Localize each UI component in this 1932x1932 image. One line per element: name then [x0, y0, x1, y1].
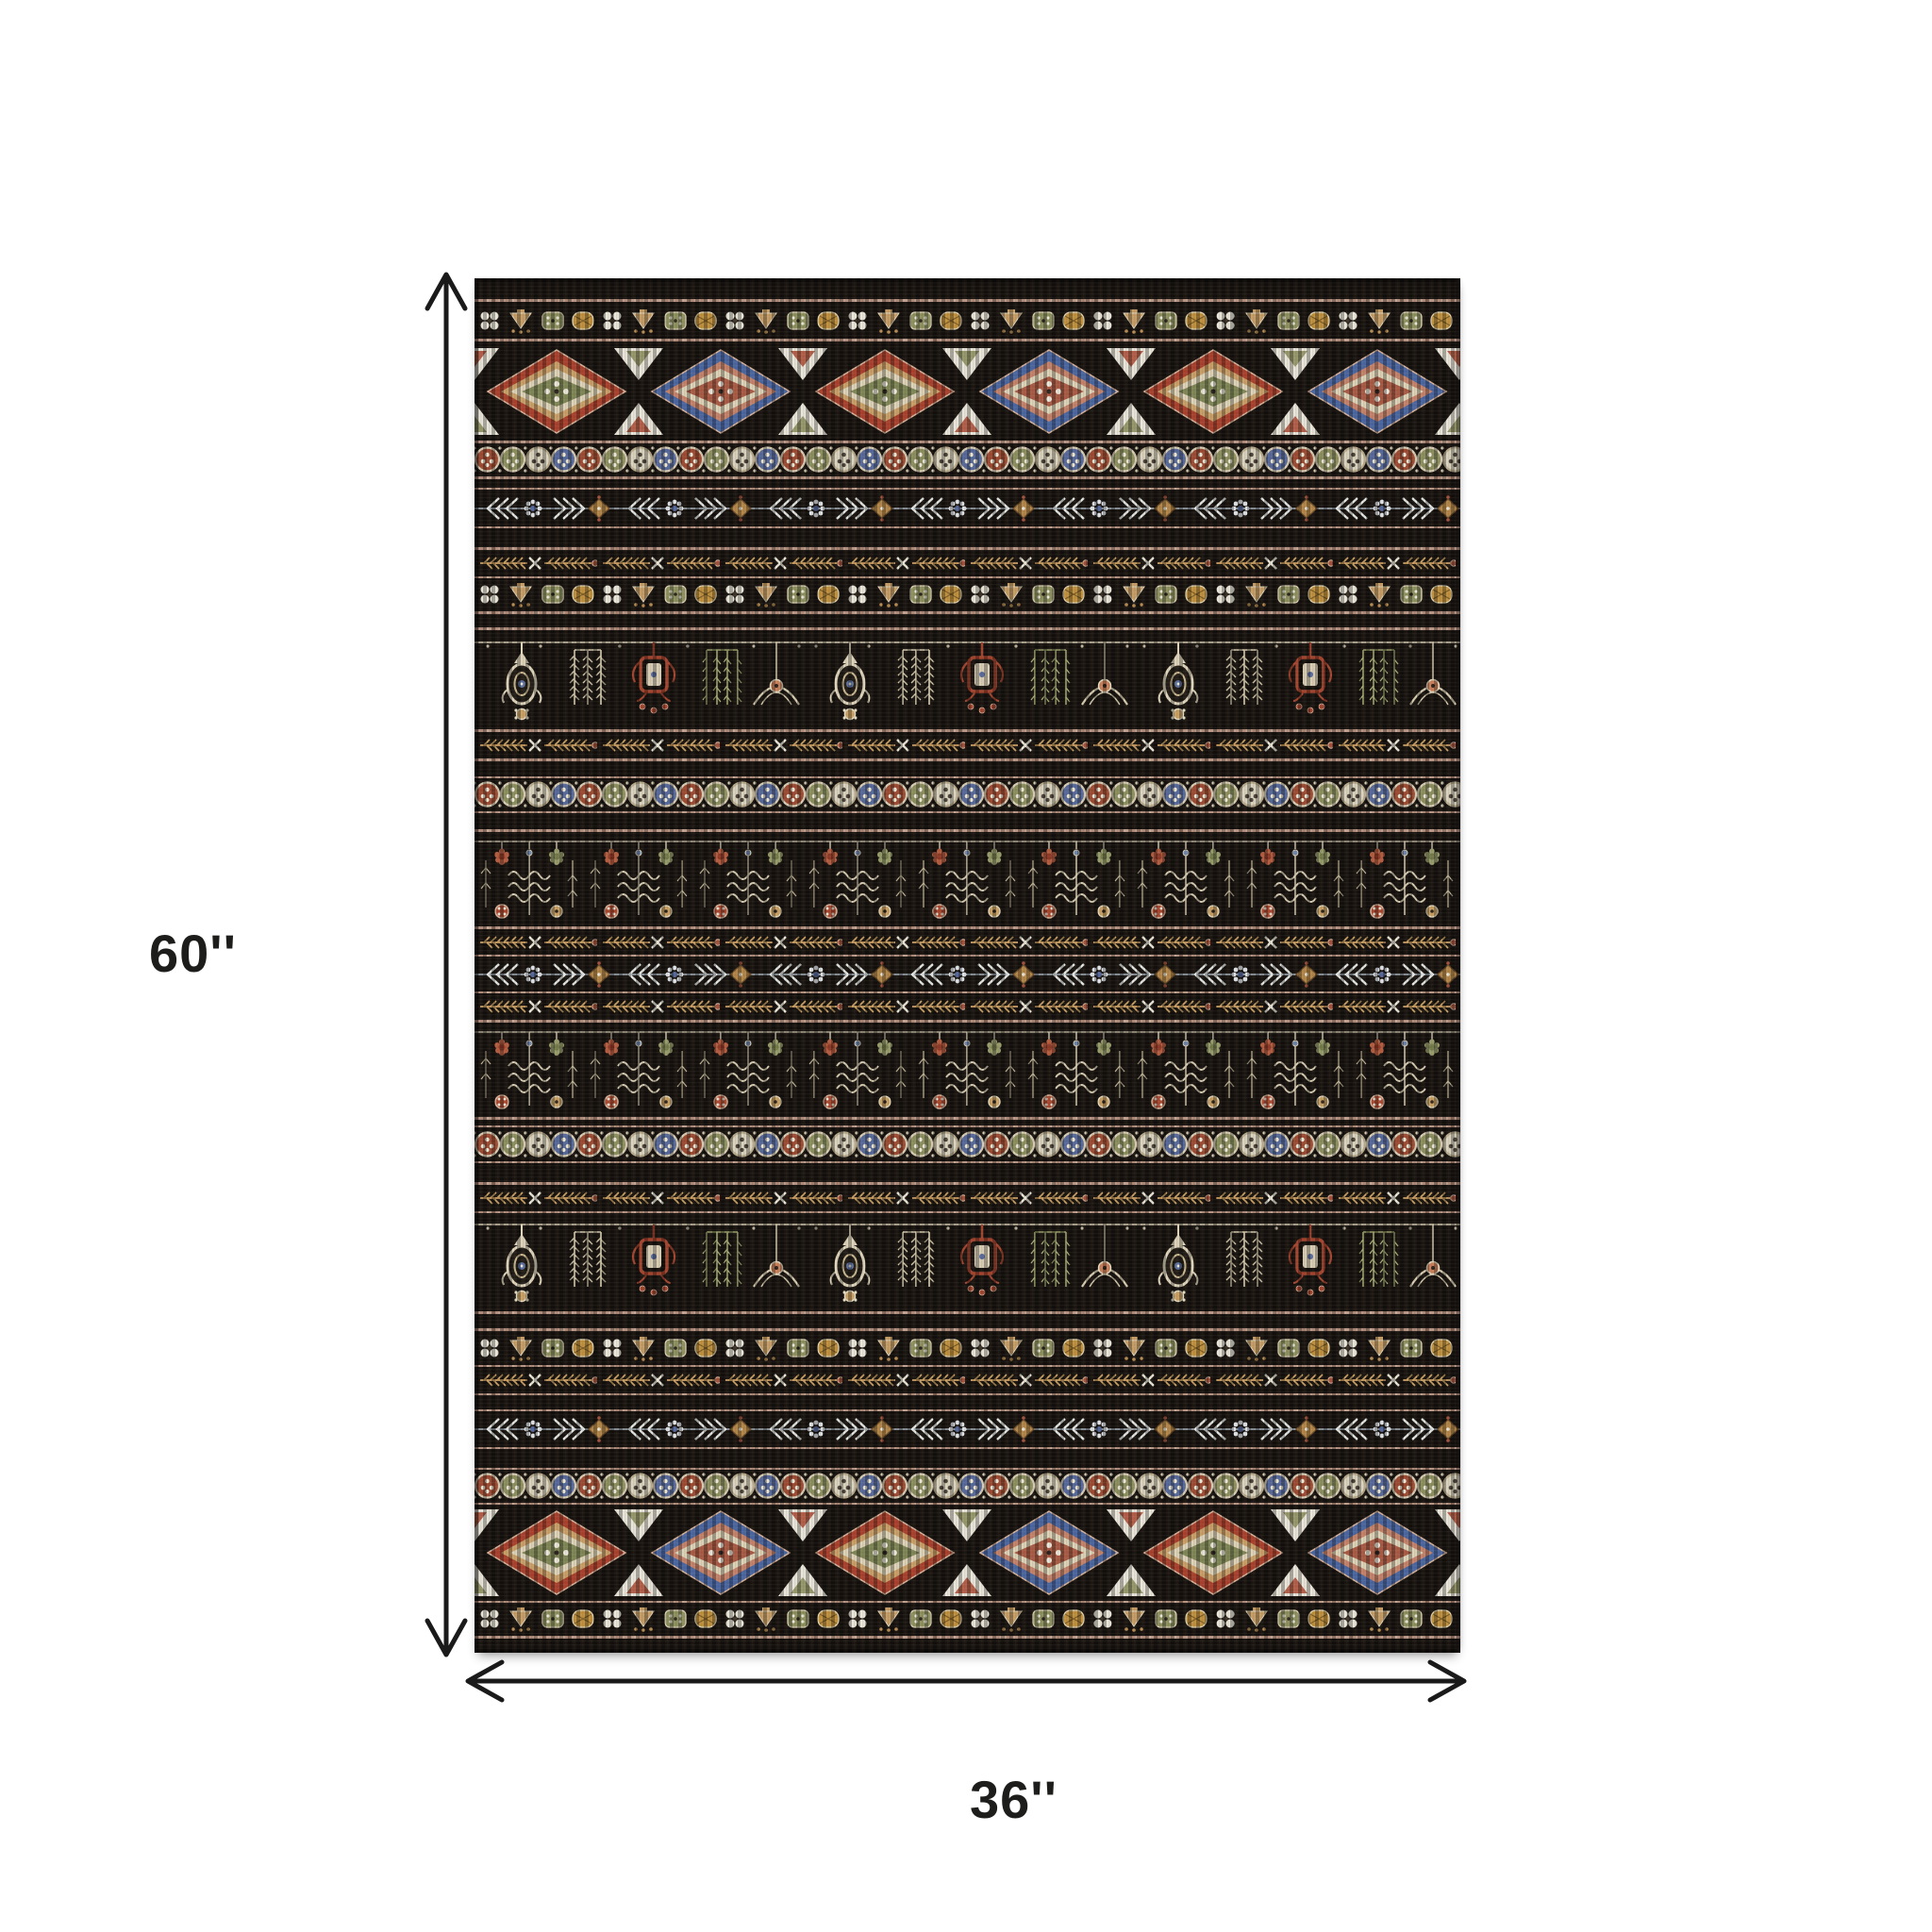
width-dimension-arrow	[462, 1657, 1470, 1705]
height-dimension-label: 60''	[149, 927, 237, 980]
dimension-diagram: 60'' 36''	[0, 0, 1932, 1932]
rug-weave-highlight	[475, 278, 1460, 1653]
height-dimension-arrow	[418, 269, 475, 1660]
width-dimension-label: 36''	[970, 1774, 1058, 1826]
rug-image	[475, 278, 1460, 1653]
rug-pattern-svg	[475, 278, 1460, 1653]
